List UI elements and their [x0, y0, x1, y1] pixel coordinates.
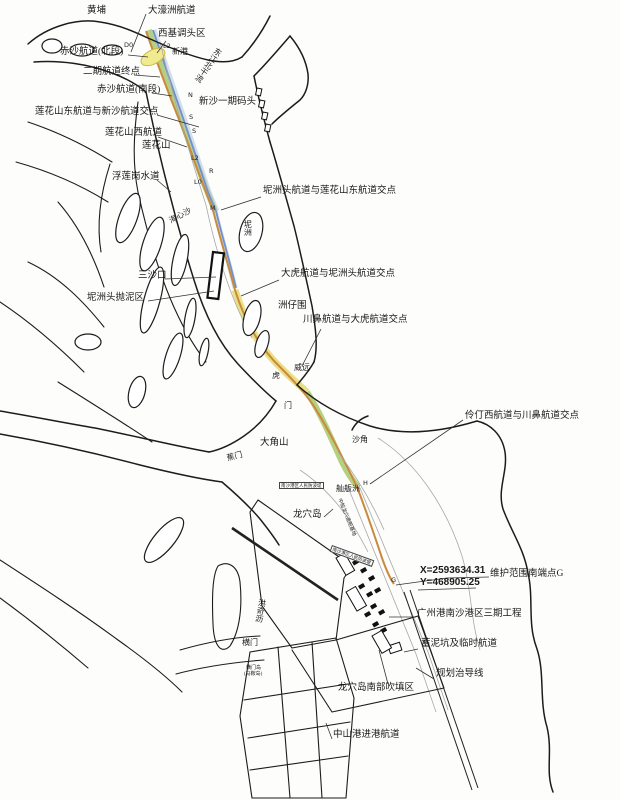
label-dajiaoshan: 大角山 — [260, 439, 289, 449]
label-mud-pit: 蓄泥坑及临时航道 — [421, 640, 497, 650]
label-fuliangang: 浮莲岗水道 — [112, 173, 160, 183]
label-humen-men: 门 — [284, 402, 292, 410]
label-coord-y: Y=468905.25 — [420, 578, 480, 589]
label-huangpu: 黄埔 — [87, 7, 106, 17]
label-chuanbi-junction: 川鼻航道与大虎航道交点 — [303, 316, 408, 326]
fishpond-grid-outline — [240, 638, 354, 798]
label-south-endpoint: 维护范围南端点G — [490, 570, 563, 580]
label-reclamation: 龙穴岛南部吹填区 — [338, 684, 414, 694]
label-lianhuashan: 莲花山 — [142, 142, 171, 152]
marker-g: G — [391, 577, 396, 584]
marker-l2b: L2 — [191, 155, 199, 162]
breakwater-line — [232, 528, 338, 600]
marker-l0: L0 — [194, 179, 202, 186]
label-breakwater-north: 南沙港区人民防波堤 — [279, 482, 324, 489]
marker-m: M — [210, 205, 216, 212]
berth-blocks — [336, 553, 392, 653]
label-dahu-junction: 大虎航道与坭洲头航道交点 — [281, 270, 395, 280]
label-lianhua-east-junction: 莲花山东航道与新沙航道交点 — [35, 108, 159, 118]
label-xiji-turning-basin: 西基调头区 — [158, 30, 206, 40]
label-lingding-junction: 伶仃西航道与川鼻航道交点 — [465, 412, 579, 422]
label-weiyuan: 威远 — [294, 364, 310, 372]
label-maan-island: (马鞍岛) — [244, 672, 262, 677]
map-canvas — [0, 0, 620, 800]
label-chisha-north: 赤沙航道(北段) — [60, 48, 123, 58]
label-phase2-end: 二期航道终点 — [83, 68, 140, 78]
label-sanshakou: 三沙口 — [138, 272, 167, 282]
marker-h: H — [363, 480, 368, 487]
label-coord-x: X=2593634.31 — [420, 566, 485, 577]
label-shanbanzhou: 舢舨洲 — [336, 485, 360, 493]
label-nansha-phase3: 广州港南沙港区三期工程 — [417, 610, 522, 620]
marker-n: N — [188, 92, 193, 99]
label-shajiao: 沙角 — [352, 436, 368, 444]
label-lianhua-west-channel: 莲花山西航道 — [105, 129, 162, 139]
label-chisha-south: 赤沙航道(南段) — [97, 86, 160, 96]
label-hengmen: 横门 — [242, 639, 258, 647]
label-dumping-area: 坭洲头抛泥区 — [87, 294, 144, 304]
label-hengmen-island: 横门岛 — [246, 666, 261, 671]
label-nizhoutou-junction: 坭洲头航道与莲花山东航道交点 — [263, 187, 396, 197]
label-xinsha-wharf: 新沙一期码头 — [199, 98, 256, 108]
label-zhongshan-channel: 中山港进港航道 — [333, 731, 400, 741]
marker-s2: S — [192, 128, 196, 135]
label-xingang: 新港 — [172, 48, 188, 56]
marker-s1: S — [189, 114, 193, 121]
label-guide-line: 规划治导线 — [436, 670, 484, 680]
label-longxue-island: 龙穴岛 — [293, 511, 322, 521]
marker-l2: L2 — [163, 43, 171, 50]
marker-r: R — [209, 168, 214, 175]
label-dahaozhou-channel: 大濠洲航道 — [148, 7, 196, 17]
label-zhouzaiwei: 洲仔围 — [278, 302, 307, 312]
estuary-channel-map: 黄埔 大濠洲航道 西基调头区 新港 东江北干流 赤沙航道(北段) 二期航道终点 … — [0, 0, 620, 800]
marker-d0: D0 — [124, 42, 133, 49]
label-humen-hu: 虎 — [272, 372, 280, 380]
label-nizhou: 坭洲 — [243, 220, 251, 236]
